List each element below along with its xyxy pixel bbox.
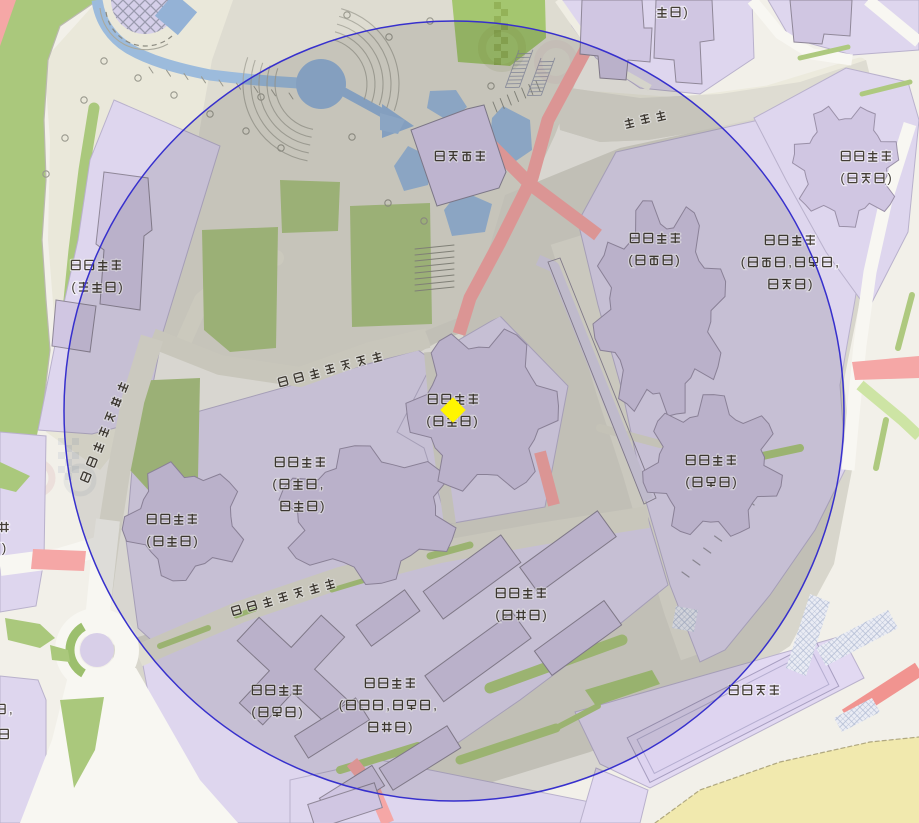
svg-text:): ) [683, 5, 687, 20]
svg-text:(: ( [71, 280, 76, 295]
svg-text:,: , [9, 702, 13, 717]
svg-text:): ) [887, 171, 891, 186]
svg-text:,: , [835, 255, 839, 270]
svg-text:(: ( [840, 171, 845, 186]
svg-text:): ) [2, 541, 6, 556]
